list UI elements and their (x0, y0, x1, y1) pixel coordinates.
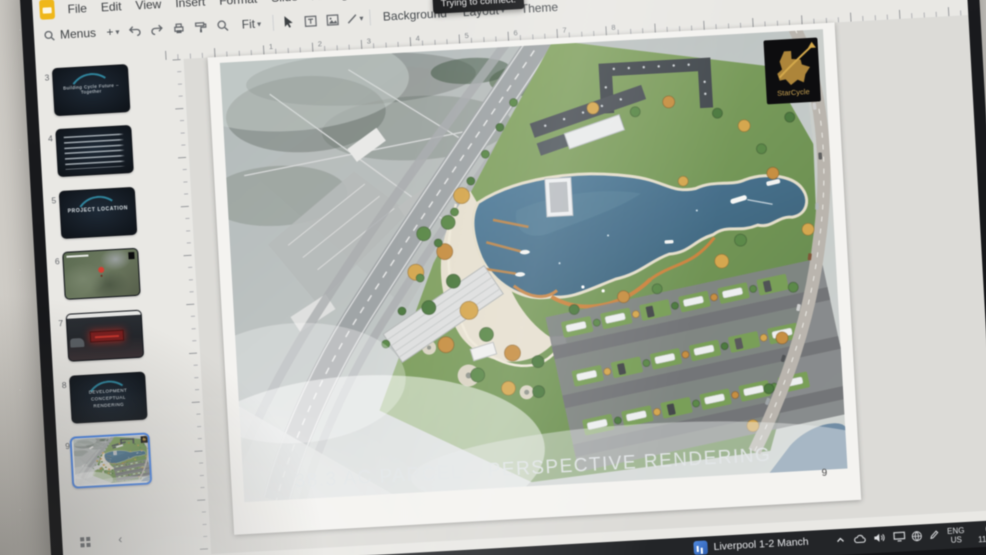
search-icon (44, 30, 56, 42)
filmstrip-row: 7 (50, 308, 183, 367)
ruler-number: 3 (367, 36, 372, 45)
ruler-number: 6 (513, 28, 518, 37)
print-icon[interactable] (169, 18, 188, 39)
slide-number: 8 (55, 380, 67, 391)
thumbnail-title: DEVELOPMENT CONCEPTUAL RENDERING (73, 387, 144, 411)
slide-filmstrip: 3 Building Cycle Future – Together 4 (36, 60, 193, 555)
cloud-icon[interactable] (853, 534, 867, 545)
menu-view[interactable]: View (128, 0, 169, 13)
filmstrip-row: 8 DEVELOPMENT CONCEPTUAL RENDERING (53, 369, 186, 428)
slide-number: 4 (42, 133, 54, 144)
network-globe-icon[interactable] (911, 530, 923, 542)
thumbnail-rendering (72, 434, 153, 488)
filmstrip-row: 5 PROJECT LOCATION (43, 185, 176, 244)
slide-thumbnail-4[interactable] (55, 125, 134, 177)
ruler-number: 2 (318, 39, 323, 48)
menu-file[interactable]: File (60, 1, 94, 17)
toolbar-divider (273, 15, 275, 31)
ruler-number: 1 (269, 42, 274, 51)
new-slide-button[interactable]: +▾ (103, 21, 122, 42)
editing-canvas[interactable] (184, 15, 986, 554)
zoom-icon[interactable] (213, 15, 232, 36)
slide-thumbnail-6[interactable] (62, 248, 141, 300)
system-tray: ENG US 6:32 PM 11/25/2024 (829, 520, 986, 555)
slide-thumbnail-7[interactable] (66, 310, 145, 362)
collapse-chevron-icon[interactable]: ‹ (118, 532, 123, 546)
news-widget[interactable]: Liverpool 1-2 Manch (693, 535, 809, 555)
slide-thumbnail-9-selected[interactable] (69, 432, 152, 488)
menu-slide[interactable]: Slide (264, 0, 305, 5)
menu-arrange[interactable]: Arrange (304, 0, 361, 3)
redo-button[interactable] (147, 19, 166, 40)
ruler-number: 8 (611, 23, 616, 32)
textbox-icon[interactable] (301, 10, 320, 31)
car-graphic (70, 338, 84, 348)
slide-number: 5 (45, 195, 57, 206)
pen-icon[interactable] (929, 529, 940, 540)
fit-label: Fit (241, 17, 255, 32)
toolbar-divider (369, 9, 371, 25)
clock-date: 11/25/2024 (969, 533, 986, 545)
slide-number: 3 (38, 72, 50, 83)
menu-format[interactable]: Format (212, 0, 265, 8)
ruler-number: 7 (562, 25, 567, 34)
slide-number: 9 (59, 441, 71, 452)
display-icon[interactable] (893, 531, 906, 542)
filmstrip-row: 3 Building Cycle Future – Together (36, 62, 169, 121)
slide-number: 6 (48, 256, 60, 267)
menus-search-button[interactable]: Menus (44, 26, 97, 43)
slide-number: 7 (52, 318, 64, 329)
screen: File Edit View Insert Format Slide Arran… (31, 0, 986, 555)
clock[interactable]: 6:32 PM 11/25/2024 (969, 523, 986, 545)
menu-insert[interactable]: Insert (168, 0, 213, 11)
slide-thumbnail-8[interactable]: DEVELOPMENT CONCEPTUAL RENDERING (69, 372, 148, 424)
clock-time: 6:32 PM (969, 523, 986, 535)
menu-edit[interactable]: Edit (94, 0, 129, 15)
paint-format-icon[interactable] (191, 16, 210, 37)
news-headline: Liverpool 1-2 Manch (713, 536, 809, 553)
slide-rendering (208, 23, 862, 535)
grid-view-icon[interactable] (80, 537, 91, 548)
tray-expand-chevron[interactable] (835, 535, 846, 546)
undo-button[interactable] (125, 20, 144, 41)
mini-logo-square (128, 252, 134, 259)
theme-label: Theme (520, 0, 558, 16)
filmstrip-row: 9 (56, 430, 189, 493)
insert-image-icon[interactable] (323, 9, 342, 30)
sports-score-icon (693, 540, 708, 555)
slide-thumbnail-3[interactable]: Building Cycle Future – Together (52, 64, 131, 116)
speaker-icon[interactable] (873, 532, 886, 543)
filmstrip-row: 4 (39, 123, 172, 182)
select-cursor-icon[interactable] (280, 11, 299, 32)
language-code: ENG (947, 526, 965, 536)
monitor-bezel: File Edit View Insert Format Slide Arran… (18, 0, 986, 555)
fit-zoom-select[interactable]: Fit▾ (235, 13, 267, 35)
slide-thumbnail-5[interactable]: PROJECT LOCATION (59, 187, 138, 239)
ruler-number: 4 (415, 34, 420, 43)
current-slide[interactable] (208, 23, 862, 535)
ruler-number: 5 (464, 31, 469, 40)
keyboard-code: US (947, 535, 965, 545)
menus-label: Menus (60, 26, 97, 42)
filmstrip-controls: ‹ (62, 527, 193, 554)
bullet-text-lines (64, 133, 126, 169)
language-indicator[interactable]: ENG US (947, 526, 965, 545)
led-sign-graphic (90, 330, 125, 343)
filmstrip-row: 6 (46, 246, 179, 305)
insert-line-icon[interactable]: ▾ (345, 8, 364, 29)
photo-of-monitor: StarCycle 38.3 AC PARCEL – PERSPECTIVE R… (0, 0, 986, 555)
